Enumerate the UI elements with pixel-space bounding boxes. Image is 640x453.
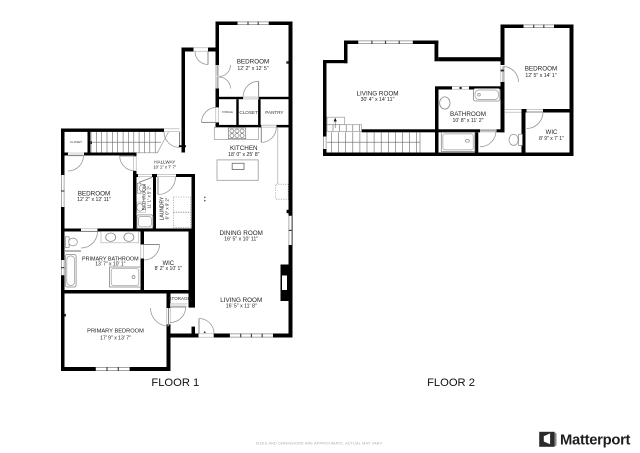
svg-text:18' 0" x 25' 8": 18' 0" x 25' 8" [228, 152, 259, 158]
svg-text:16' 5" x 10' 11": 16' 5" x 10' 11" [224, 236, 258, 242]
svg-text:8' 9" x 7' 1": 8' 9" x 7' 1" [539, 136, 564, 142]
svg-text:30' 4" x 14' 11": 30' 4" x 14' 11" [361, 97, 395, 103]
svg-text:11' 1" x 5' 2": 11' 1" x 5' 2" [146, 185, 151, 208]
svg-text:CLOSET: CLOSET [70, 140, 82, 144]
svg-text:PANTRY: PANTRY [265, 110, 283, 115]
svg-text:STORAGE: STORAGE [169, 296, 191, 301]
svg-text:17' 9" x 13' 7": 17' 9" x 13' 7" [100, 336, 131, 342]
svg-text:12' 2" x 12' 11": 12' 2" x 12' 11" [77, 197, 111, 203]
svg-text:12' 2" x 12' 5": 12' 2" x 12' 5" [237, 66, 268, 72]
svg-text:BEDROOM: BEDROOM [237, 59, 270, 66]
svg-text:10' 8" x 11' 2": 10' 8" x 11' 2" [453, 118, 484, 124]
svg-text:BEDROOM: BEDROOM [525, 66, 558, 73]
svg-text:CLOSET: CLOSET [239, 110, 258, 115]
svg-text:8' 2" x 10' 1": 8' 2" x 10' 1" [155, 266, 183, 272]
svg-text:10' 1" x 7' 7": 10' 1" x 7' 7" [153, 164, 176, 169]
svg-text:13' 7" x 10' 1": 13' 7" x 10' 1" [95, 262, 125, 268]
svg-text:SIZES AND DIMENSIONS ARE APPRO: SIZES AND DIMENSIONS ARE APPROXIMATE, AC… [256, 442, 383, 446]
svg-text:PRIMARY BEDROOM: PRIMARY BEDROOM [87, 329, 144, 335]
svg-text:FLOOR 2: FLOOR 2 [427, 377, 475, 389]
svg-text:STORAGE: STORAGE [222, 109, 233, 114]
svg-text:Matterport: Matterport [560, 432, 631, 448]
svg-text:6' 0" x 9' 2": 6' 0" x 9' 2" [165, 197, 170, 219]
svg-text:16' 5" x 11' 8": 16' 5" x 11' 8" [226, 304, 257, 310]
svg-text:FLOOR 1: FLOOR 1 [151, 377, 199, 389]
svg-text:12' 5" x 14' 1": 12' 5" x 14' 1" [525, 73, 556, 79]
